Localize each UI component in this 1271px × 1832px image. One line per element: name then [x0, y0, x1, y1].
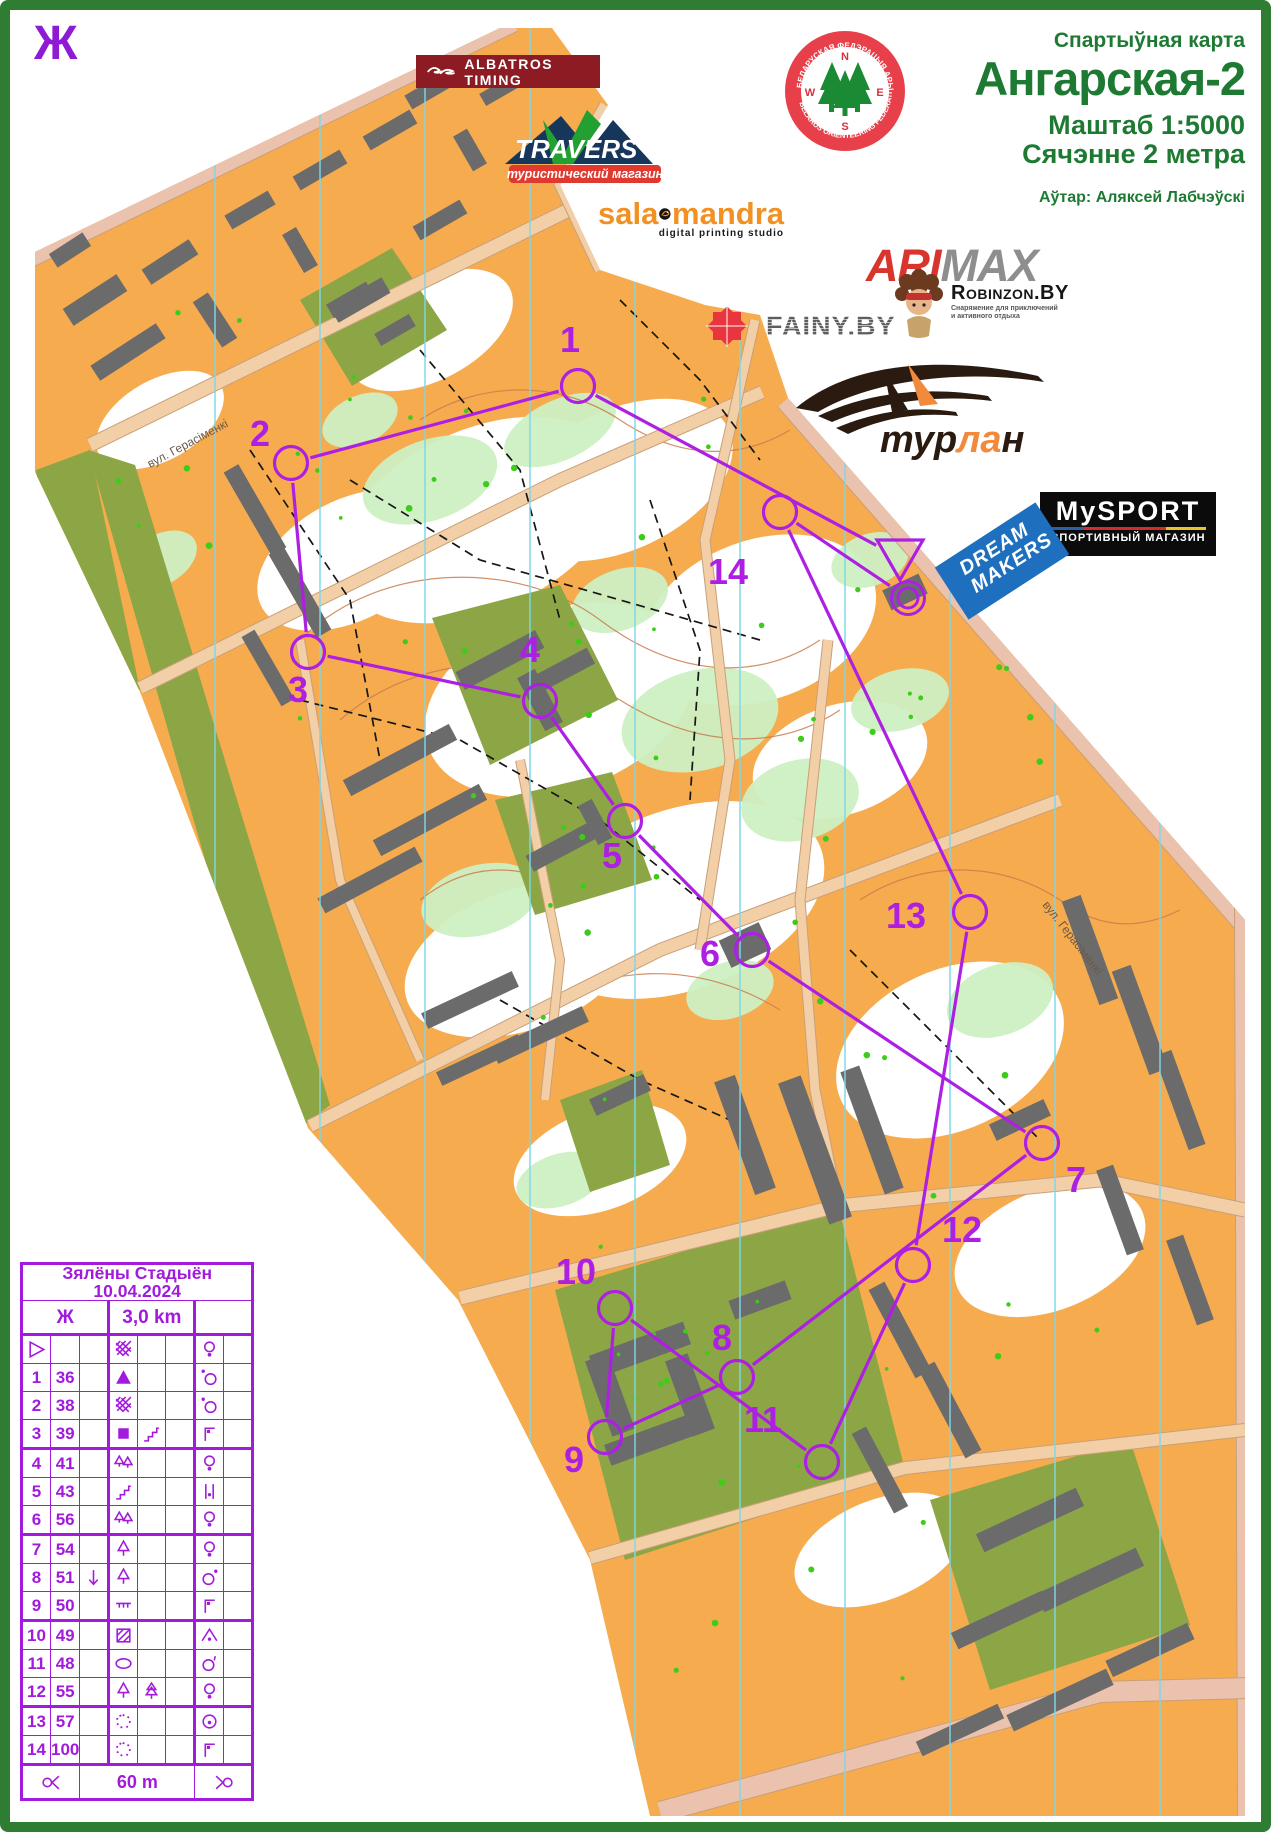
robinzon-wordmark: Robinzon.BY: [951, 282, 1069, 305]
control-row: 543: [22, 1478, 253, 1506]
orienteering-map-sheet: { "corner_mark": "Ж", "header": { "kicke…: [0, 0, 1271, 1832]
tree-icon: [113, 1539, 134, 1560]
circle-center-dot-icon: [199, 1711, 220, 1732]
control-number-1: 1: [560, 319, 580, 360]
turlan-part2: ла: [955, 419, 1002, 461]
salamandra-logo: sala mandra digital printing studio: [598, 196, 784, 260]
col-h: [224, 1392, 253, 1420]
control-number: [22, 1335, 51, 1364]
col-e: [138, 1478, 166, 1506]
albatros-label: ALBATROS TIMING: [464, 56, 600, 88]
col-c: [80, 1420, 109, 1449]
col-g-location: [195, 1621, 224, 1650]
col-h: [224, 1478, 253, 1506]
compass-w: W: [805, 87, 816, 99]
control-code: 43: [51, 1478, 80, 1506]
course-length: 3,0 km: [109, 1301, 195, 1335]
mysport-wordmark: MySPORT: [1040, 498, 1216, 525]
control-number-11: 11: [744, 1399, 782, 1440]
col-f: [166, 1364, 195, 1392]
control-number-8: 8: [712, 1317, 732, 1358]
col-g-location: [195, 1707, 224, 1736]
mysport-color-bars: [1050, 527, 1206, 530]
compass-s: S: [841, 121, 848, 133]
col-e: [138, 1621, 166, 1650]
col-h: [224, 1650, 253, 1678]
arrow-down-icon: [83, 1567, 104, 1588]
col-e: [138, 1592, 166, 1621]
circle-dot-nw-icon: [199, 1395, 220, 1416]
col-h: [224, 1420, 253, 1449]
col-d-feature: [109, 1449, 138, 1478]
robinzon-logo: Robinzon.BY Снаряжение для приключений и…: [893, 268, 1083, 350]
col-c: [80, 1364, 109, 1392]
card-header-row: Ж3,0 km: [22, 1301, 253, 1335]
flag-corner-icon: [199, 1739, 220, 1760]
col-e: [138, 1650, 166, 1678]
apex-dot-icon: [199, 1625, 220, 1646]
col-e: [138, 1678, 166, 1707]
salamander-icon: [658, 196, 672, 232]
circle-tick-icon: [199, 1653, 220, 1674]
col-g-location: [195, 1564, 224, 1592]
col-h: [224, 1621, 253, 1650]
control-number: 8: [22, 1564, 51, 1592]
col-c: [80, 1736, 109, 1765]
two-trees-icon: [113, 1453, 134, 1474]
col-e: [138, 1364, 166, 1392]
col-e: [138, 1506, 166, 1535]
control-number-5: 5: [602, 835, 622, 876]
col-h: [224, 1592, 253, 1621]
col-c: [80, 1449, 109, 1478]
robinzon-character-icon: [893, 268, 945, 340]
col-d-feature: [109, 1592, 138, 1621]
travers-logo: TRAVERS туристический магазин: [503, 108, 667, 188]
col-d-feature: [109, 1364, 138, 1392]
col-h: [224, 1535, 253, 1564]
col-d-feature: [109, 1678, 138, 1707]
two-trees-icon: [113, 1509, 134, 1530]
control-row: 136: [22, 1364, 253, 1392]
thicket-icon: [113, 1339, 134, 1360]
col-c: [80, 1678, 109, 1707]
finish-right-icon: [213, 1772, 234, 1793]
control-row: 441: [22, 1449, 253, 1478]
col-e: [138, 1392, 166, 1420]
col-f: [166, 1592, 195, 1621]
col-c: [80, 1650, 109, 1678]
col-d-feature: [109, 1335, 138, 1364]
lamp-icon: [199, 1453, 220, 1474]
control-number-12: 12: [942, 1209, 982, 1250]
tree-icon: [113, 1681, 134, 1702]
event-title: Зялёны Стадыён 10.04.2024: [22, 1264, 253, 1301]
map-kicker: Спартыўная карта: [974, 30, 1245, 52]
col-g-location: [195, 1592, 224, 1621]
map-scale: Маштаб 1:5000: [974, 111, 1245, 139]
col-c: [80, 1506, 109, 1535]
mysport-tagline: СПОРТИВНЫЙ МАГАЗИН: [1040, 532, 1216, 544]
control-number-4: 4: [520, 629, 540, 670]
control-number-10: 10: [556, 1251, 596, 1292]
control-row: 14100: [22, 1736, 253, 1765]
col-g-location: [195, 1650, 224, 1678]
finish-left-glyph: [22, 1765, 80, 1800]
col-c: [80, 1564, 109, 1592]
col-f: [166, 1535, 195, 1564]
map-contour-interval: Сячэнне 2 метра: [974, 140, 1245, 168]
control-number-3: 3: [288, 669, 308, 710]
control-number-2: 2: [250, 413, 270, 454]
col-c: [80, 1707, 109, 1736]
control-row: 238: [22, 1392, 253, 1420]
flag-corner-icon: [199, 1595, 220, 1616]
col-f: [166, 1478, 195, 1506]
thicket-icon: [113, 1395, 134, 1416]
col-f: [166, 1506, 195, 1535]
control-code: 54: [51, 1535, 80, 1564]
eight-point-star-icon: [698, 297, 756, 355]
tree-icon: [113, 1567, 134, 1588]
svg-text:турлан: турлан: [880, 419, 1024, 461]
col-g-location: [195, 1392, 224, 1420]
control-number: 4: [22, 1449, 51, 1478]
control-code: 49: [51, 1621, 80, 1650]
control-row: 851: [22, 1564, 253, 1592]
col-e: [138, 1420, 166, 1449]
control-number: 14: [22, 1736, 51, 1765]
col-c: [80, 1335, 109, 1364]
salamandra-word-right: mandra: [672, 196, 784, 232]
col-f: [166, 1678, 195, 1707]
col-c: [80, 1621, 109, 1650]
copse-icon: [113, 1653, 134, 1674]
col-e: [138, 1449, 166, 1478]
col-g-location: [195, 1335, 224, 1364]
col-g-location: [195, 1736, 224, 1765]
travers-tagline: туристический магазин: [507, 167, 664, 181]
control-code: 38: [51, 1392, 80, 1420]
col-h: [224, 1449, 253, 1478]
control-number-6: 6: [700, 933, 720, 974]
stairway-icon: [141, 1423, 162, 1444]
col-f: [166, 1392, 195, 1420]
col-h: [224, 1364, 253, 1392]
clearing-icon: [113, 1739, 134, 1760]
robinzon-tagline1: Снаряжение для приключений: [951, 305, 1069, 313]
turlan-logo: турлан: [788, 346, 1062, 470]
mysport-logo: MySPORT СПОРТИВНЫЙ МАГАЗИН: [1040, 492, 1216, 556]
bird-icon: [426, 62, 456, 82]
albatros-timing-logo: ALBATROS TIMING: [416, 55, 600, 88]
col-f: [166, 1449, 195, 1478]
circle-dot-ne-icon: [199, 1567, 220, 1588]
control-row: 1148: [22, 1650, 253, 1678]
col-f: [166, 1420, 195, 1449]
control-code: 50: [51, 1592, 80, 1621]
title-block: Спартыўная карта Ангарская-2 Маштаб 1:50…: [974, 30, 1245, 207]
col-h: [224, 1335, 253, 1364]
control-code: 100: [51, 1736, 80, 1765]
control-code: 36: [51, 1364, 80, 1392]
col-d-feature: [109, 1420, 138, 1449]
control-row: 339: [22, 1420, 253, 1449]
col-g-location: [195, 1449, 224, 1478]
col-d-feature: [109, 1650, 138, 1678]
col-e: [138, 1535, 166, 1564]
col-e: [138, 1707, 166, 1736]
control-number: 6: [22, 1506, 51, 1535]
col-g-location: [195, 1506, 224, 1535]
col-d-feature: [109, 1535, 138, 1564]
col-f: [166, 1621, 195, 1650]
control-row: 950: [22, 1592, 253, 1621]
control-number: 13: [22, 1707, 51, 1736]
control-number: 9: [22, 1592, 51, 1621]
control-code: 51: [51, 1564, 80, 1592]
col-f: [166, 1335, 195, 1364]
control-code: 57: [51, 1707, 80, 1736]
control-number: 2: [22, 1392, 51, 1420]
between-icon: [199, 1481, 220, 1502]
col-d-feature: [109, 1564, 138, 1592]
control-code: 55: [51, 1678, 80, 1707]
finish-left-icon: [41, 1772, 62, 1793]
control-code: 39: [51, 1420, 80, 1449]
control-number: 12: [22, 1678, 51, 1707]
col-f: [166, 1707, 195, 1736]
col-c: [80, 1592, 109, 1621]
control-number: 10: [22, 1621, 51, 1650]
col-d-feature: [109, 1707, 138, 1736]
col-c: [80, 1478, 109, 1506]
card-title-row: Зялёны Стадыён 10.04.2024: [22, 1264, 253, 1301]
control-row: [22, 1335, 253, 1364]
control-number-9: 9: [564, 1439, 584, 1480]
stairway-icon: [113, 1481, 134, 1502]
col-f: [166, 1650, 195, 1678]
turlan-part1: тур: [880, 419, 957, 461]
map-title: Ангарская-2: [974, 54, 1245, 103]
conifer-icon: [141, 1681, 162, 1702]
col-g-location: [195, 1420, 224, 1449]
fence-icon: [113, 1595, 134, 1616]
circle-dot-nw-icon: [199, 1367, 220, 1388]
flag-corner-icon: [199, 1423, 220, 1444]
finish-distance: 60 m: [80, 1765, 195, 1800]
map-series-letter: Ж: [34, 16, 77, 71]
course-class: Ж: [22, 1301, 109, 1335]
col-h: [224, 1678, 253, 1707]
col-g-location: [195, 1364, 224, 1392]
col-h: [224, 1506, 253, 1535]
col-e: [138, 1335, 166, 1364]
control-description-table: Зялёны Стадыён 10.04.2024Ж3,0 km13623833…: [20, 1262, 254, 1801]
control-description-card: Зялёны Стадыён 10.04.2024Ж3,0 km13623833…: [20, 1262, 254, 1801]
col-g-location: [195, 1678, 224, 1707]
lamp-icon: [199, 1509, 220, 1530]
col-g-location: [195, 1535, 224, 1564]
course-climb: [195, 1301, 253, 1335]
col-c: [80, 1535, 109, 1564]
col-c: [80, 1392, 109, 1420]
travers-wordmark: TRAVERS: [515, 134, 638, 164]
control-number: 5: [22, 1478, 51, 1506]
lamp-icon: [199, 1339, 220, 1360]
lamp-icon: [199, 1539, 220, 1560]
col-h: [224, 1707, 253, 1736]
col-d-feature: [109, 1621, 138, 1650]
salamandra-word-left: sala: [598, 196, 658, 232]
map-author: Аўтар: Аляксей Лабчэўскі: [974, 190, 1245, 207]
control-code: 48: [51, 1650, 80, 1678]
compass-e: E: [876, 87, 883, 99]
control-row: 1255: [22, 1678, 253, 1707]
turlan-part3: н: [1001, 419, 1024, 461]
finish-right-glyph: [195, 1765, 253, 1800]
col-d-feature: [109, 1736, 138, 1765]
col-d-feature: [109, 1478, 138, 1506]
col-h: [224, 1564, 253, 1592]
finish-row: 60 m: [22, 1765, 253, 1800]
col-d-feature: [109, 1392, 138, 1420]
start-icon: [26, 1339, 47, 1360]
federation-logo: БЕЛАРУСКАЯ ФЕДЭРАЦЫЯ АРЫЕНТАВАННЯ BELARU…: [782, 28, 908, 154]
control-number: 11: [22, 1650, 51, 1678]
fainy-wordmark: FAINY.BY: [766, 311, 896, 342]
control-number-7: 7: [1066, 1159, 1086, 1200]
robinzon-tagline2: и активного отдыха: [951, 313, 1069, 321]
control-code: 56: [51, 1506, 80, 1535]
control-row: 1049: [22, 1621, 253, 1650]
building-icon: [113, 1423, 134, 1444]
col-d-feature: [109, 1506, 138, 1535]
compass-n: N: [841, 51, 849, 63]
lamp-icon: [199, 1681, 220, 1702]
col-f: [166, 1736, 195, 1765]
control-number: 1: [22, 1364, 51, 1392]
control-code: [51, 1335, 80, 1364]
control-row: 656: [22, 1506, 253, 1535]
control-row: 754: [22, 1535, 253, 1564]
control-number-13: 13: [886, 895, 926, 936]
control-number: 7: [22, 1535, 51, 1564]
control-number-14: 14: [708, 551, 748, 592]
boulder-icon: [113, 1367, 134, 1388]
col-h: [224, 1736, 253, 1765]
control-code: 41: [51, 1449, 80, 1478]
col-e: [138, 1736, 166, 1765]
col-f: [166, 1564, 195, 1592]
clearing-icon: [113, 1711, 134, 1732]
control-row: 1357: [22, 1707, 253, 1736]
paved-area-icon: [113, 1625, 134, 1646]
col-g-location: [195, 1478, 224, 1506]
col-e: [138, 1564, 166, 1592]
control-number: 3: [22, 1420, 51, 1449]
